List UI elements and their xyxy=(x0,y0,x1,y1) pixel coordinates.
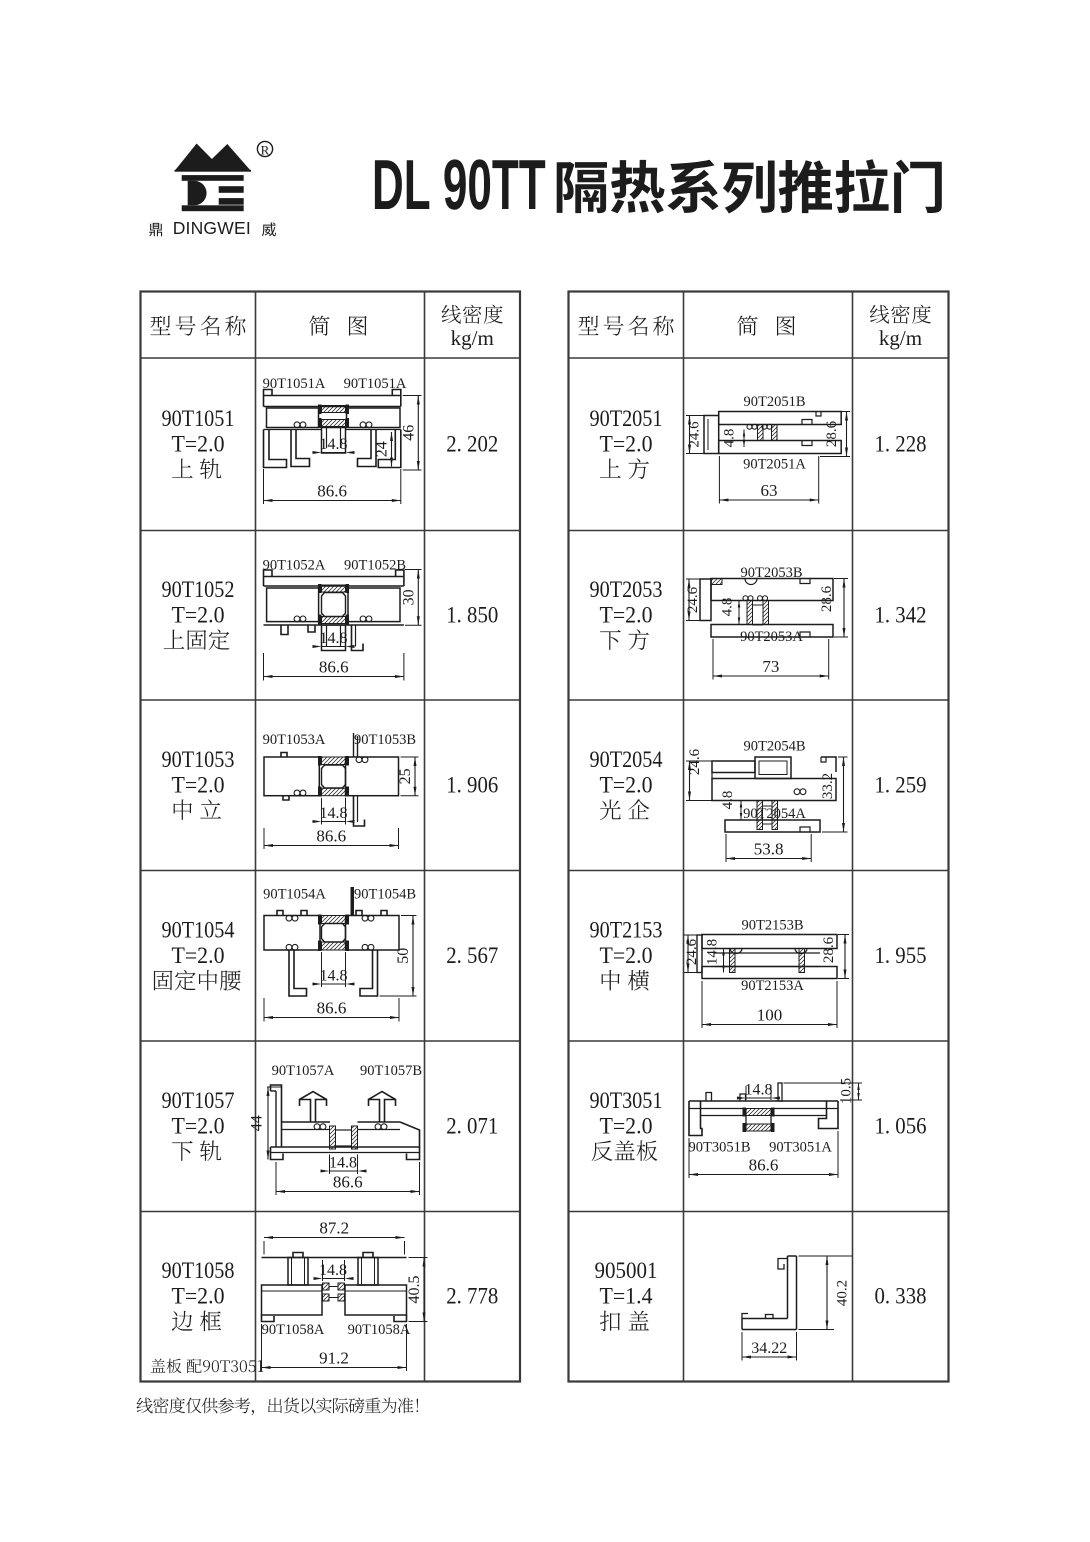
svg-text:53.8: 53.8 xyxy=(754,840,784,859)
svg-text:90T1052: 90T1052 xyxy=(162,577,235,603)
svg-text:87.2: 87.2 xyxy=(319,1219,349,1238)
svg-text:T=2.0: T=2.0 xyxy=(600,1113,653,1139)
svg-text:86.6: 86.6 xyxy=(317,482,347,501)
svg-text:50: 50 xyxy=(395,948,412,964)
svg-text:2. 567: 2. 567 xyxy=(446,943,498,969)
svg-text:10.5: 10.5 xyxy=(839,1078,855,1104)
svg-text:44: 44 xyxy=(249,1115,266,1131)
svg-text:14.8: 14.8 xyxy=(745,1082,773,1099)
svg-text:R: R xyxy=(261,143,270,158)
svg-text:90T2153A: 90T2153A xyxy=(741,978,804,994)
svg-text:24.6: 24.6 xyxy=(687,748,703,775)
svg-text:28.6: 28.6 xyxy=(819,585,835,612)
svg-text:90T1058A: 90T1058A xyxy=(262,1322,325,1338)
svg-text:63: 63 xyxy=(761,481,778,500)
svg-text:90T1054A: 90T1054A xyxy=(263,887,326,903)
svg-text:T=2.0: T=2.0 xyxy=(600,602,653,628)
svg-text:90T1053B: 90T1053B xyxy=(354,732,416,748)
svg-text:40.2: 40.2 xyxy=(835,1280,851,1306)
svg-text:73: 73 xyxy=(762,657,779,676)
svg-text:90T2054A: 90T2054A xyxy=(743,806,806,822)
svg-text:1. 056: 1. 056 xyxy=(875,1113,927,1139)
svg-text:kg/m: kg/m xyxy=(451,326,494,350)
svg-text:14.8: 14.8 xyxy=(319,1262,347,1279)
svg-text:91.2: 91.2 xyxy=(319,1349,349,1368)
svg-text:14.8: 14.8 xyxy=(320,968,348,985)
svg-text:T=1.4: T=1.4 xyxy=(600,1284,653,1310)
svg-text:905001: 905001 xyxy=(595,1258,658,1284)
svg-text:100: 100 xyxy=(757,1006,783,1025)
svg-text:T=2.0: T=2.0 xyxy=(600,943,653,969)
svg-text:4.8: 4.8 xyxy=(720,791,736,810)
svg-text:90T1052B: 90T1052B xyxy=(344,558,406,574)
svg-text:90T2054: 90T2054 xyxy=(590,747,663,773)
svg-text:90T3051: 90T3051 xyxy=(590,1088,663,1114)
svg-text:0. 338: 0. 338 xyxy=(875,1284,927,1310)
svg-text:T=2.0: T=2.0 xyxy=(600,431,653,457)
svg-text:24: 24 xyxy=(374,441,391,457)
svg-text:90T1053A: 90T1053A xyxy=(263,732,326,748)
svg-text:25: 25 xyxy=(397,768,414,784)
svg-text:T=2.0: T=2.0 xyxy=(172,602,225,628)
svg-text:90T1054B: 90T1054B xyxy=(354,887,416,903)
svg-text:14.8: 14.8 xyxy=(329,1155,357,1172)
svg-text:24.6: 24.6 xyxy=(687,421,703,448)
svg-text:kg/m: kg/m xyxy=(879,326,922,350)
svg-text:14.8: 14.8 xyxy=(705,939,721,965)
svg-text:90T2051B: 90T2051B xyxy=(743,394,805,410)
svg-text:90T2153: 90T2153 xyxy=(590,917,663,943)
svg-text:90T1057B: 90T1057B xyxy=(360,1063,422,1079)
svg-text:2. 778: 2. 778 xyxy=(446,1284,498,1310)
svg-text:4.8: 4.8 xyxy=(720,598,736,617)
svg-text:1. 955: 1. 955 xyxy=(875,943,927,969)
svg-text:1. 259: 1. 259 xyxy=(875,772,927,798)
svg-text:2. 202: 2. 202 xyxy=(446,431,498,457)
svg-text:24.6: 24.6 xyxy=(684,938,700,965)
svg-text:90T2053: 90T2053 xyxy=(590,577,663,603)
svg-text:90T2054B: 90T2054B xyxy=(743,739,805,755)
svg-text:1. 906: 1. 906 xyxy=(446,772,498,798)
svg-text:T=2.0: T=2.0 xyxy=(172,772,225,798)
svg-text:33.2: 33.2 xyxy=(820,773,836,799)
svg-text:90T2051A: 90T2051A xyxy=(743,457,806,473)
svg-text:T=2.0: T=2.0 xyxy=(600,772,653,798)
svg-text:1. 342: 1. 342 xyxy=(875,602,927,628)
svg-text:T=2.0: T=2.0 xyxy=(172,943,225,969)
svg-text:40.5: 40.5 xyxy=(406,1276,423,1304)
svg-text:DINGWEI: DINGWEI xyxy=(173,218,251,238)
svg-text:86.6: 86.6 xyxy=(317,999,347,1018)
svg-text:14.8: 14.8 xyxy=(320,436,348,453)
svg-text:4.8: 4.8 xyxy=(722,429,738,448)
svg-text:90T1058A: 90T1058A xyxy=(348,1322,411,1338)
svg-text:30: 30 xyxy=(400,589,417,605)
svg-text:14.8: 14.8 xyxy=(320,630,348,647)
svg-text:86.6: 86.6 xyxy=(319,658,349,677)
svg-text:90T1058: 90T1058 xyxy=(162,1258,235,1284)
svg-text:90T1053: 90T1053 xyxy=(162,747,235,773)
svg-text:86.6: 86.6 xyxy=(749,1156,779,1175)
svg-text:90T3051B: 90T3051B xyxy=(688,1140,750,1156)
svg-text:T=2.0: T=2.0 xyxy=(172,431,225,457)
svg-text:90T1051: 90T1051 xyxy=(162,406,235,432)
svg-text:T=2.0: T=2.0 xyxy=(172,1284,225,1310)
svg-text:1. 850: 1. 850 xyxy=(446,602,498,628)
svg-text:90T2053A: 90T2053A xyxy=(740,629,803,645)
svg-text:90T1057A: 90T1057A xyxy=(272,1063,335,1079)
svg-text:28.6: 28.6 xyxy=(821,936,837,963)
svg-text:34.22: 34.22 xyxy=(751,1340,787,1357)
svg-text:28.6: 28.6 xyxy=(824,420,840,447)
svg-text:90T3051A: 90T3051A xyxy=(769,1140,832,1156)
svg-text:14.8: 14.8 xyxy=(320,805,348,822)
svg-text:90T1054: 90T1054 xyxy=(162,917,235,943)
svg-text:86.6: 86.6 xyxy=(316,827,346,846)
svg-text:90T2051: 90T2051 xyxy=(590,406,663,432)
svg-text:T=2.0: T=2.0 xyxy=(172,1113,225,1139)
svg-text:46: 46 xyxy=(400,425,417,441)
svg-text:1. 228: 1. 228 xyxy=(875,431,927,457)
svg-text:24.6: 24.6 xyxy=(685,586,701,613)
svg-text:90T2153B: 90T2153B xyxy=(741,918,803,934)
svg-text:90T1057: 90T1057 xyxy=(162,1088,235,1114)
svg-text:86.6: 86.6 xyxy=(333,1173,363,1192)
svg-text:2. 071: 2. 071 xyxy=(446,1113,498,1139)
